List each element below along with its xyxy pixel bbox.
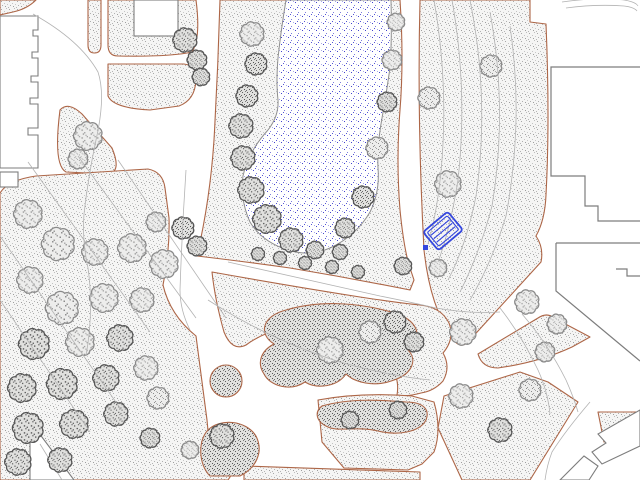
- map-canvas[interactable]: [0, 0, 640, 480]
- tree-canopy[interactable]: [173, 28, 197, 52]
- tree-canopy[interactable]: [117, 234, 145, 263]
- shrub-mass[interactable]: [317, 400, 427, 433]
- tree-canopy[interactable]: [231, 146, 255, 170]
- tree-canopy[interactable]: [387, 13, 405, 31]
- tree-canopy[interactable]: [449, 384, 473, 408]
- tree-canopy[interactable]: [48, 448, 72, 472]
- map-viewport[interactable]: [0, 0, 640, 480]
- tree-canopy[interactable]: [488, 418, 512, 442]
- tree-canopy[interactable]: [359, 321, 381, 343]
- shrub-mass[interactable]: [210, 365, 242, 397]
- tree-canopy[interactable]: [240, 22, 264, 46]
- tree-canopy[interactable]: [325, 260, 338, 273]
- tree-canopy[interactable]: [107, 325, 133, 352]
- tree-canopy[interactable]: [187, 236, 207, 256]
- tree-canopy[interactable]: [535, 342, 555, 362]
- tree-canopy[interactable]: [251, 247, 264, 260]
- tree-canopy[interactable]: [13, 200, 41, 229]
- tree-canopy[interactable]: [59, 410, 87, 439]
- tree-canopy[interactable]: [210, 424, 234, 448]
- tree-canopy[interactable]: [252, 205, 280, 234]
- tree-canopy[interactable]: [245, 53, 267, 75]
- building-footprint[interactable]: [134, 0, 178, 36]
- selection-grip[interactable]: [423, 245, 428, 250]
- tree-canopy[interactable]: [46, 369, 77, 400]
- tree-canopy[interactable]: [366, 137, 388, 159]
- tree-canopy[interactable]: [389, 401, 407, 419]
- lawn-area[interactable]: [88, 0, 101, 53]
- tree-canopy[interactable]: [332, 244, 347, 259]
- tree-canopy[interactable]: [352, 186, 374, 208]
- lawn-area[interactable]: [108, 64, 196, 110]
- tree-canopy[interactable]: [450, 319, 476, 346]
- tree-canopy[interactable]: [147, 387, 169, 409]
- tree-canopy[interactable]: [187, 50, 207, 70]
- tree-canopy[interactable]: [104, 402, 128, 426]
- building-footprint[interactable]: [0, 16, 38, 168]
- tree-canopy[interactable]: [5, 449, 31, 476]
- tree-canopy[interactable]: [480, 55, 502, 77]
- tree-canopy[interactable]: [384, 311, 406, 333]
- tree-canopy[interactable]: [382, 50, 402, 70]
- tree-canopy[interactable]: [298, 256, 311, 269]
- tree-canopy[interactable]: [68, 149, 88, 169]
- tree-canopy[interactable]: [12, 413, 43, 444]
- tree-canopy[interactable]: [236, 85, 258, 107]
- tree-canopy[interactable]: [377, 92, 397, 112]
- tree-canopy[interactable]: [181, 441, 199, 459]
- tree-canopy[interactable]: [547, 314, 567, 334]
- tree-canopy[interactable]: [306, 241, 324, 259]
- tree-canopy[interactable]: [519, 379, 541, 401]
- tree-canopy[interactable]: [394, 257, 412, 275]
- tree-canopy[interactable]: [279, 228, 303, 252]
- tree-canopy[interactable]: [140, 428, 160, 448]
- tree-canopy[interactable]: [317, 337, 343, 364]
- tree-canopy[interactable]: [229, 114, 253, 138]
- tree-canopy[interactable]: [335, 218, 355, 238]
- tree-canopy[interactable]: [341, 411, 359, 429]
- building-footprint[interactable]: [0, 172, 18, 187]
- tree-canopy[interactable]: [418, 87, 440, 109]
- tree-canopy[interactable]: [65, 328, 93, 357]
- tree-canopy[interactable]: [192, 68, 210, 86]
- tree-canopy[interactable]: [89, 284, 117, 313]
- tree-canopy[interactable]: [273, 251, 286, 264]
- tree-canopy[interactable]: [134, 356, 158, 380]
- tree-canopy[interactable]: [41, 227, 74, 260]
- tree-canopy[interactable]: [351, 265, 364, 278]
- tree-canopy[interactable]: [238, 177, 264, 204]
- tree-canopy[interactable]: [7, 374, 35, 403]
- tree-canopy[interactable]: [17, 267, 43, 294]
- tree-canopy[interactable]: [73, 122, 101, 151]
- tree-canopy[interactable]: [515, 290, 539, 314]
- tree-canopy[interactable]: [404, 332, 424, 352]
